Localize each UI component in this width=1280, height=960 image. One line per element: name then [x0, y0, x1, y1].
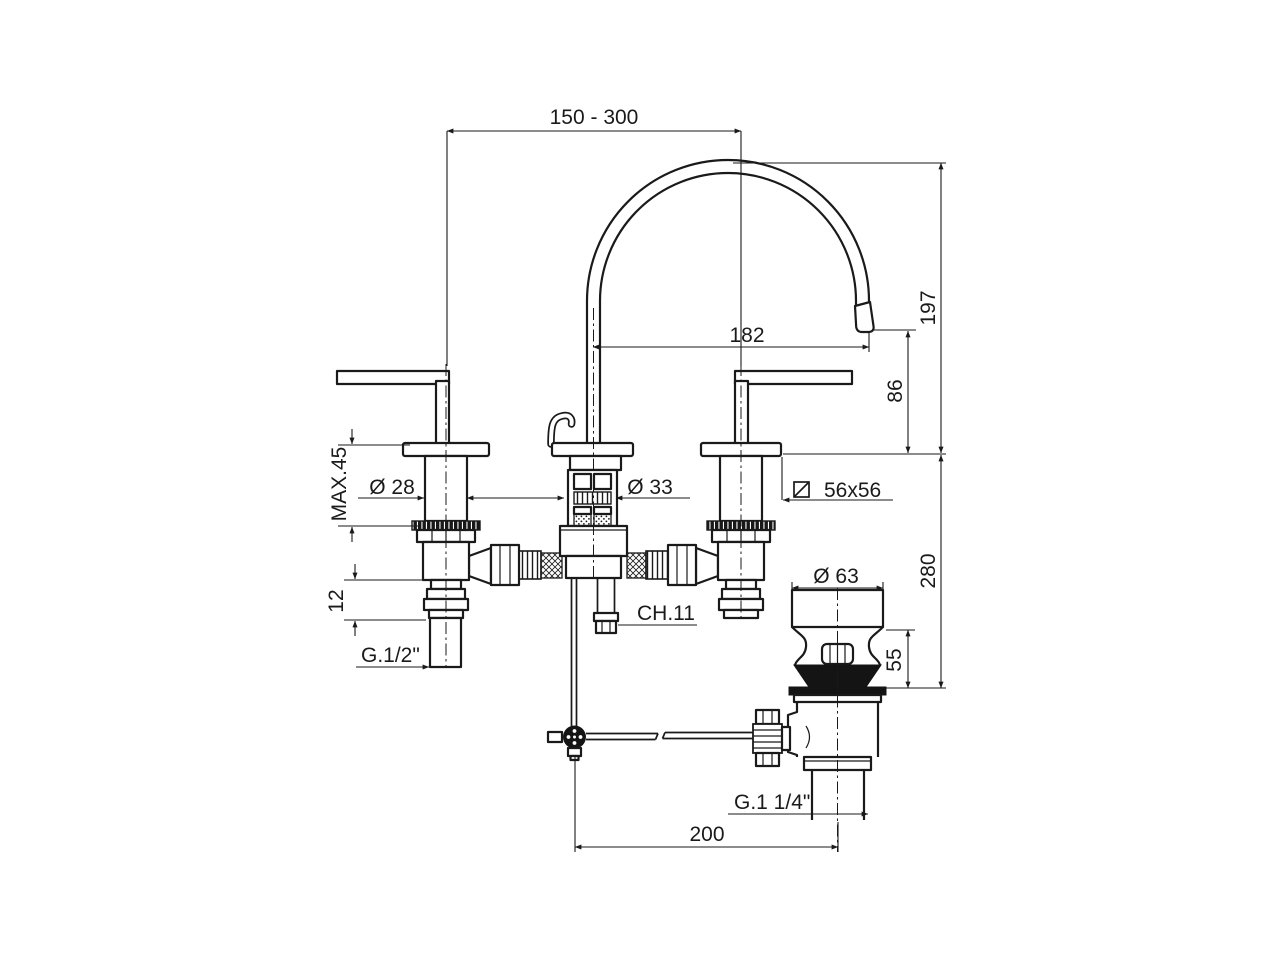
- rod-hex-lower: [756, 753, 779, 766]
- label-waste-body-height: 55: [883, 648, 906, 671]
- left-lever: [337, 371, 449, 384]
- label-base-plate: 56x56: [824, 479, 881, 502]
- knurled-nut: [753, 724, 782, 753]
- pop-up-lever-hook: [551, 416, 572, 444]
- rod-hex-upper: [756, 710, 779, 724]
- label-under-deck-depth: 280: [917, 553, 940, 588]
- label-spout-reach: 150 - 300: [550, 106, 639, 129]
- label-spout-projection: 182: [729, 324, 764, 347]
- square-section-icon: [794, 482, 809, 497]
- spout-outlet-nozzle: [855, 302, 874, 332]
- technical-drawing: 150 - 300 182 197 86 280 55 MAX.45 12 Ø …: [0, 0, 1280, 960]
- label-spout-height: 197: [917, 290, 940, 325]
- label-outlet-clearance: 86: [884, 379, 907, 402]
- swan-neck-spout: [587, 160, 874, 444]
- ch11-hex-end: [594, 613, 618, 621]
- left-handle: [337, 371, 489, 667]
- label-rod-wrench: CH.11: [637, 602, 695, 625]
- label-max-mount-thickness: MAX.45: [328, 447, 351, 522]
- mixer-body: [552, 443, 633, 578]
- drawing-canvas: 150 - 300 182 197 86 280 55 MAX.45 12 Ø …: [0, 0, 1280, 960]
- label-waste-cap-dia: Ø 63: [813, 565, 859, 588]
- horizontal-rod: [586, 733, 754, 740]
- label-waste-thread: G.1 1/4": [734, 791, 810, 814]
- right-lever: [735, 371, 852, 384]
- label-inlet-step: 12: [325, 589, 348, 612]
- faucet-assembly: [337, 160, 886, 820]
- center-escutcheon: [552, 443, 633, 456]
- label-body-shank-dia: Ø 33: [627, 476, 673, 499]
- label-drain-offset: 200: [689, 823, 724, 846]
- pop-up-waste: [753, 590, 886, 820]
- label-supply-thread: G.1/2": [361, 644, 420, 667]
- label-handle-shank-dia: Ø 28: [369, 476, 415, 499]
